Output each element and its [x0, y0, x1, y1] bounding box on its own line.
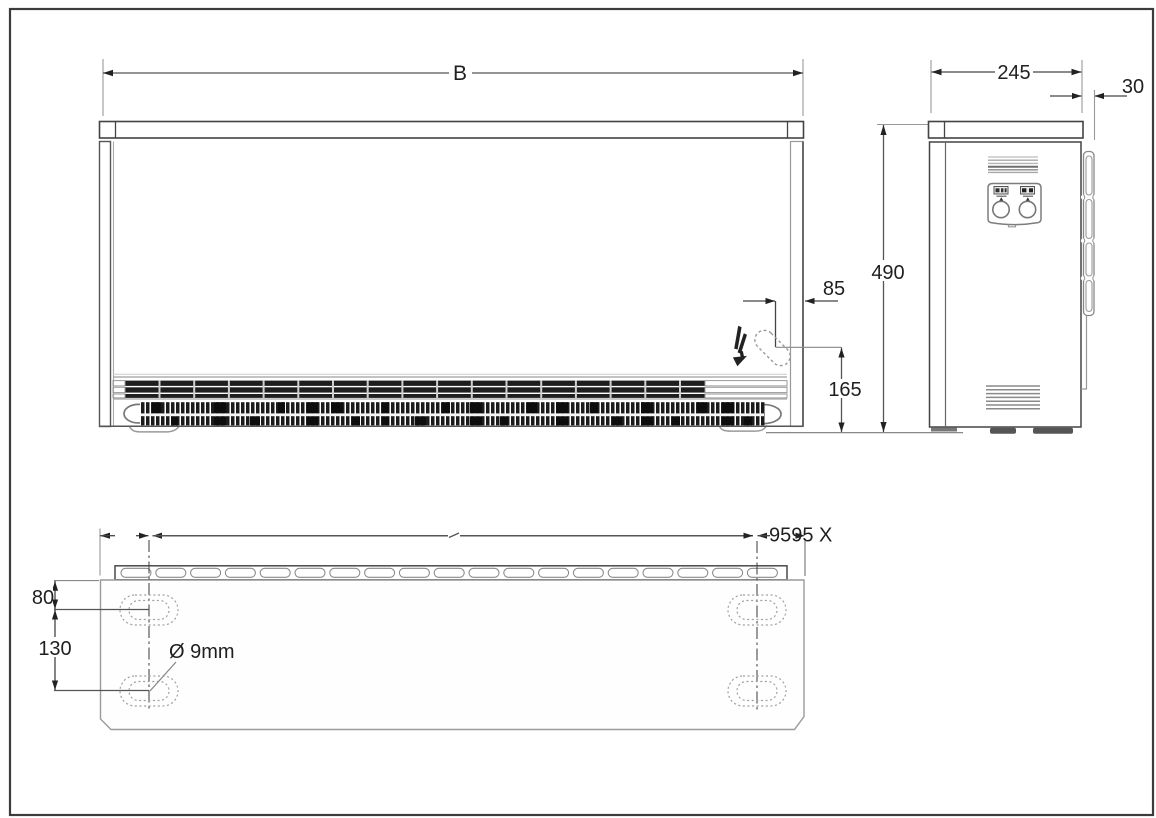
svg-text:30: 30 — [1122, 76, 1144, 98]
svg-text:130: 130 — [38, 638, 71, 660]
svg-text:85: 85 — [823, 278, 845, 300]
svg-text:165: 165 — [828, 379, 861, 401]
svg-text:490: 490 — [871, 262, 904, 284]
svg-text:80: 80 — [32, 587, 54, 609]
svg-text:B: B — [453, 62, 467, 85]
svg-text:245: 245 — [997, 62, 1030, 84]
svg-text:Ø 9mm: Ø 9mm — [169, 641, 235, 663]
